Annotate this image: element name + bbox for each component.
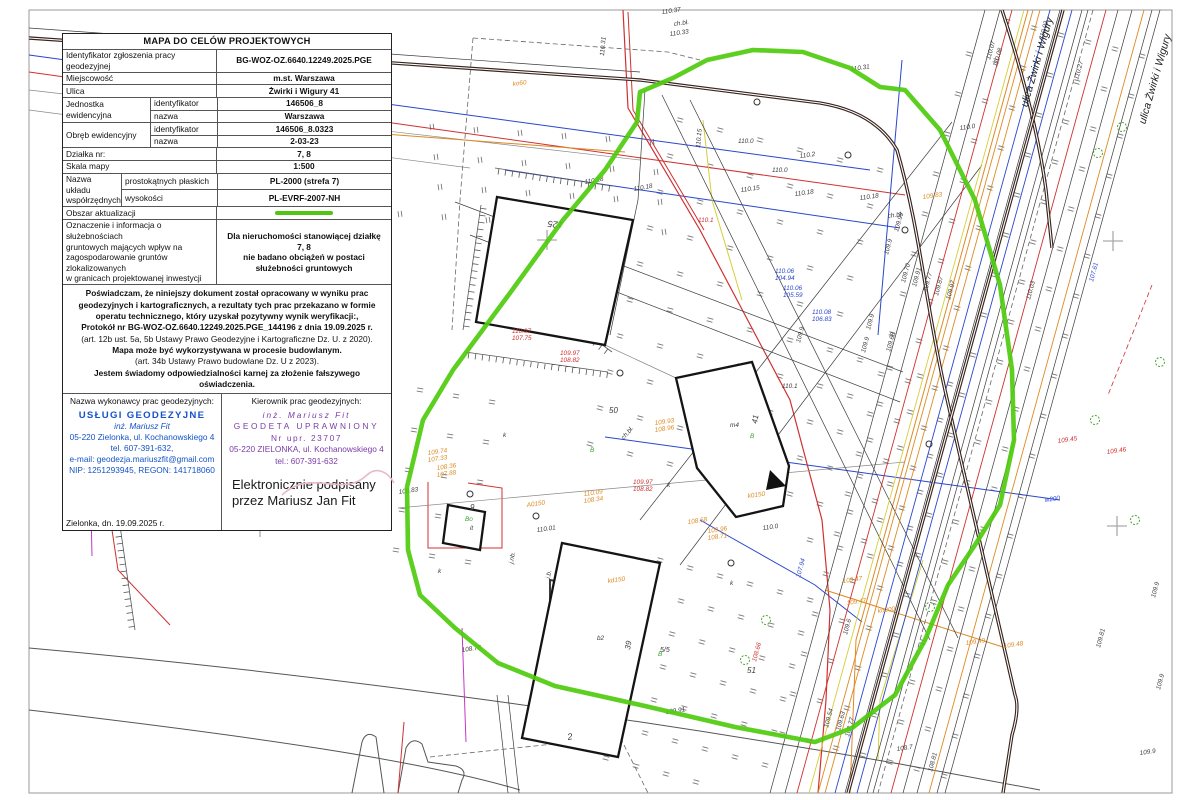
row-label: Miejscowość xyxy=(63,73,217,85)
row-value: 2-03-23 xyxy=(218,136,391,148)
map-label: 9 xyxy=(470,503,475,512)
map-label: 50 xyxy=(609,406,618,415)
row-sublabel: nazwa xyxy=(151,136,218,148)
building-outline xyxy=(443,505,485,550)
table-row: Jednostka ewidencyjna identyfikator 1465… xyxy=(63,97,391,122)
row-label: Obszar aktualizacji xyxy=(63,207,217,219)
row-label: Obręb ewidencyjny xyxy=(63,123,151,147)
map-label: 51 xyxy=(747,666,756,675)
company-name: USŁUGI GEODEZYJNE xyxy=(66,410,218,421)
building-outline xyxy=(476,197,633,345)
row-label-line: Oznaczenie i informacja o służebnościach xyxy=(66,220,213,241)
map-label: B xyxy=(750,433,755,440)
map-info-table: MAPA DO CELÓW PROJEKTOWYCH Identyfikator… xyxy=(62,33,392,531)
map-label: B xyxy=(590,447,595,454)
statement-line: Poświadczam, że niniejszy dokument zosta… xyxy=(69,288,385,299)
company-person: inż. Mariusz Fit xyxy=(66,421,218,432)
map-label: 110.0 xyxy=(738,138,754,145)
statement-line: Protokół nr BG-WOZ-OZ.6640.12249.2025.PG… xyxy=(69,322,385,333)
row-label: Skala mapy xyxy=(63,161,217,173)
row-label: Oznaczenie i informacja o służebnościach… xyxy=(63,220,217,285)
row-value: Dla nieruchomości stanowiącej działkę 7,… xyxy=(217,220,391,285)
row-value: PL-EVRF-2007-NH xyxy=(218,190,391,206)
manager-block: Kierownik prac geodezyjnych: inż. Marius… xyxy=(222,394,391,530)
contractor-block: Nazwa wykonawcy prac geodezyjnych: USŁUG… xyxy=(63,394,222,530)
row-value: m.st. Warszawa xyxy=(217,73,391,85)
map-label: 110.06 xyxy=(775,268,795,275)
map-label: 108.82 xyxy=(633,486,653,493)
row-value: PL-2000 (strefa 7) xyxy=(218,174,391,190)
map-label: 106.83 xyxy=(812,316,832,323)
row-label: Ulica xyxy=(63,85,217,97)
row-label-line: w granicach projektowanej inwestycji xyxy=(66,273,213,284)
row-value: Warszawa xyxy=(218,111,391,123)
row-sublabel: nazwa xyxy=(151,111,218,123)
manager-person: inż. Mariusz Fit xyxy=(226,410,387,422)
table-row: Obszar aktualizacji xyxy=(63,206,391,219)
map-label: i.b. xyxy=(545,570,553,580)
row-value: 1:500 xyxy=(217,161,391,173)
row-value: 146506_8 xyxy=(218,98,391,110)
row-sublabel: wysokości xyxy=(122,190,218,206)
map-label: 108.82 xyxy=(560,357,580,364)
document-date: Zielonka, dn. 19.09.2025 r. xyxy=(66,518,218,529)
manager-details: inż. Mariusz Fit GEODETA UPRAWNIONY Nr u… xyxy=(226,410,387,468)
manager-license: Nr upr. 23707 xyxy=(226,433,387,445)
row-value: Żwirki i Wigury 41 xyxy=(217,85,391,97)
row-value: BG-WOZ-OZ.6640.12249.2025.PGE xyxy=(217,50,391,72)
contractor-details: USŁUGI GEODEZYJNE inż. Mariusz Fit 05-22… xyxy=(66,410,218,476)
table-row: Skala mapy 1:500 xyxy=(63,160,391,173)
company-phone: tel. 607-391-632, xyxy=(66,443,218,454)
map-label: 104.94 xyxy=(775,275,795,282)
map-label: m4 xyxy=(730,422,739,429)
table-row: Miejscowość m.st. Warszawa xyxy=(63,72,391,85)
statement-line: Jestem świadomy odpowiedzialności karnej… xyxy=(69,368,385,391)
green-line-swatch xyxy=(275,211,333,215)
statement-line: (art. 12b ust. 5a, 5b Ustawy Prawo Geode… xyxy=(69,334,385,345)
map-title: MAPA DO CELÓW PROJEKTOWYCH xyxy=(63,34,391,49)
row-label: Działka nr: xyxy=(63,148,217,160)
row-value: 146506_8.0323 xyxy=(218,123,391,135)
manager-title: GEODETA UPRAWNIONY xyxy=(226,421,387,433)
statement-line: geodezyjnych i kartograficznych, a rezul… xyxy=(69,300,385,311)
row-label-line: zagospodarowanie gruntów zlokalizowanych xyxy=(66,252,213,273)
map-label: b2 xyxy=(597,635,605,642)
statement-line: (art. 34b Ustawy Prawo budowlane Dz. U z… xyxy=(69,356,385,367)
map-label: 41 xyxy=(750,414,760,424)
manager-header: Kierownik prac geodezyjnych: xyxy=(226,396,387,407)
table-row: Ulica Żwirki i Wigury 41 xyxy=(63,84,391,97)
contractor-section: Nazwa wykonawcy prac geodezyjnych: USŁUG… xyxy=(63,393,391,530)
statement-block: Poświadczam, że niniejszy dokument zosta… xyxy=(63,284,391,393)
row-value-line: Dla nieruchomości stanowiącej działkę xyxy=(227,231,381,242)
map-label: 105.59 xyxy=(783,292,803,299)
map-document-page: 110.37ch.bł.110.33110.31110.15110.18110.… xyxy=(0,0,1200,800)
signature-squiggle-icon xyxy=(272,463,422,503)
map-label: 110.97 xyxy=(512,328,532,335)
row-value: 7, 8 xyxy=(217,148,391,160)
map-label: 109.97 xyxy=(633,479,653,486)
row-value-line: nie badano obciążeń w postaci xyxy=(243,252,365,263)
digital-signature: Elektronicznie podpisany przez Mariusz J… xyxy=(232,477,387,509)
map-label: 110.1 xyxy=(698,217,714,224)
row-value-line: 7, 8 xyxy=(297,242,311,253)
row-sublabel: identyfikator xyxy=(151,123,218,135)
update-area-swatch xyxy=(217,207,391,219)
map-label: 110.06 xyxy=(783,285,803,292)
company-nip: NIP: 1251293945, REGON: 141718060 xyxy=(66,465,218,476)
company-address: 05-220 Zielonka, ul. Kochanowskiego 4 xyxy=(66,432,218,443)
manager-address: 05-220 ZIELONKA, ul. Kochanowskiego 4 xyxy=(226,444,387,456)
row-label: Jednostka ewidencyjna xyxy=(63,98,151,122)
map-label: Bo xyxy=(465,516,473,523)
table-row: Oznaczenie i informacja o służebnościach… xyxy=(63,219,391,285)
row-value-line: służebności gruntowych xyxy=(256,263,353,274)
table-row: Obręb ewidencyjny identyfikator 146506_8… xyxy=(63,122,391,147)
row-label-line: gruntowych mających wpływ na xyxy=(66,242,213,253)
row-label: Nazwa układu współrzędnych xyxy=(63,174,122,207)
row-label: Identyfikator zgłoszenia pracy geodezyjn… xyxy=(63,50,217,72)
map-label: 110.08 xyxy=(812,309,832,316)
map-label: B xyxy=(658,651,663,658)
row-sublabel: identyfikator xyxy=(151,98,218,110)
map-label: 110.1 xyxy=(782,383,798,390)
map-label: it xyxy=(470,525,473,532)
table-row: Nazwa układu współrzędnych prostokątnych… xyxy=(63,173,391,207)
contractor-header: Nazwa wykonawcy prac geodezyjnych: xyxy=(66,396,218,407)
statement-line: operatu technicznego, który uzyskał pozy… xyxy=(69,311,385,322)
map-label: 107.75 xyxy=(512,335,532,342)
table-row: Identyfikator zgłoszenia pracy geodezyjn… xyxy=(63,49,391,72)
map-label: 109.97 xyxy=(560,350,580,357)
row-sublabel: prostokątnych płaskich xyxy=(122,174,218,190)
company-email: e-mail: geodezja.mariuszfit@gmail.com xyxy=(66,454,218,465)
table-row: Działka nr: 7, 8 xyxy=(63,147,391,160)
statement-line: Mapa może być wykorzystywana w procesie … xyxy=(69,345,385,356)
map-label: 110.0 xyxy=(772,167,788,174)
